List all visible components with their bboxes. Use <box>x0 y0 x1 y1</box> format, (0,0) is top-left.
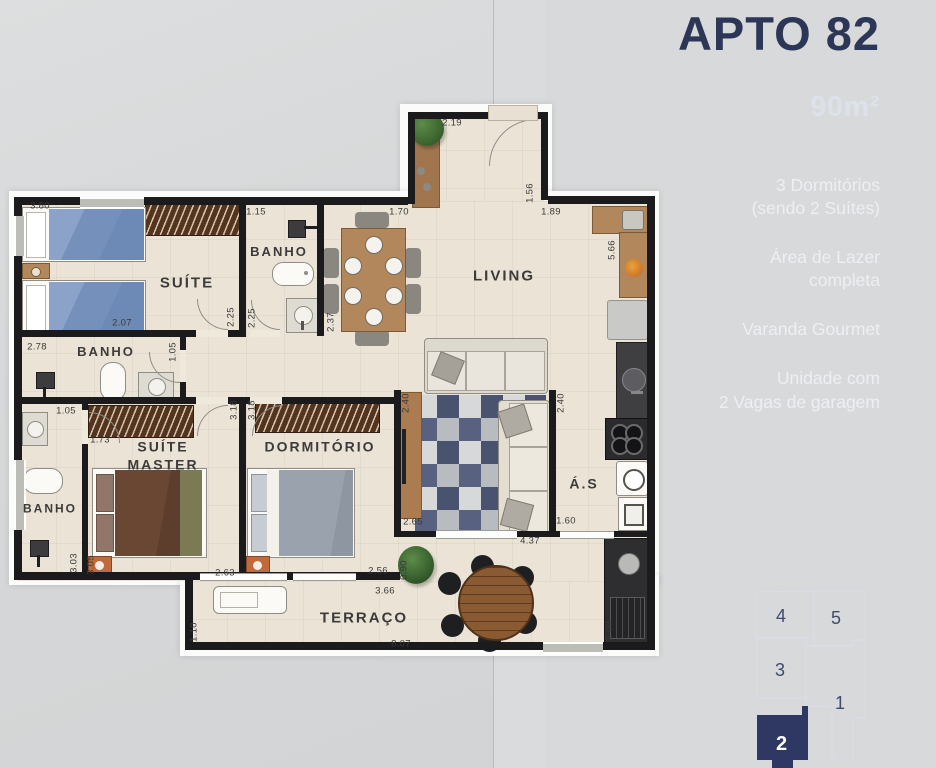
burner-icon <box>625 437 643 455</box>
lamp-icon <box>31 267 41 277</box>
dimension-label: 8.07 <box>391 639 411 650</box>
dimension-label: 1.15 <box>246 207 266 218</box>
pillow-icon <box>26 285 46 331</box>
dimension-label: 1.05 <box>56 406 76 417</box>
window-icon <box>80 197 144 209</box>
single-bed-icon <box>22 207 146 262</box>
laundry-tank-icon <box>618 497 648 531</box>
dining-table-icon <box>341 228 406 332</box>
feature-item: 3 Dormitórios (sendo 2 Suítes) <box>600 174 880 220</box>
faucet-icon <box>301 321 304 330</box>
shower-arm-icon <box>304 226 318 229</box>
keyplan-label-5: 5 <box>831 608 841 628</box>
dimension-label: 3.66 <box>375 586 395 597</box>
blanket-icon <box>115 470 180 556</box>
sliding-door-icon <box>293 573 356 581</box>
plate-icon <box>365 308 383 326</box>
window-icon <box>14 216 26 256</box>
sink-icon <box>618 553 640 575</box>
nightstand-icon <box>22 263 50 279</box>
room-label: BANHO <box>23 502 77 517</box>
feature-list: 3 Dormitórios (sendo 2 Suítes)Área de La… <box>600 174 880 414</box>
door-opening <box>196 330 228 337</box>
dimension-label: 3.03 <box>69 553 80 573</box>
dimension-label: 1.73 <box>90 435 110 446</box>
dimension-label: 3.18 <box>247 400 258 420</box>
pillow-icon <box>251 474 268 512</box>
apartment-area: 90m² <box>600 91 880 124</box>
sofa-cushion <box>509 447 548 491</box>
bench-seat <box>220 592 258 608</box>
room-label: DORMITÓRIO <box>265 438 376 456</box>
shower-stem-icon <box>37 555 40 567</box>
basin-icon <box>148 378 166 396</box>
dimension-label: 3.18 <box>229 400 240 420</box>
wardrobe-icon <box>145 202 240 236</box>
dimension-label: 2.19 <box>442 118 462 129</box>
marketing-floorplan-page: SUÍTEBANHOBANHOLIVINGSUÍTE MASTERDORMITÓ… <box>0 0 936 768</box>
feature-item: Varanda Gourmet <box>600 318 880 341</box>
toilet-icon <box>23 468 63 494</box>
dimension-label: 2.40 <box>401 393 412 413</box>
vanity-sink-icon <box>22 412 48 446</box>
bench-icon <box>213 586 287 614</box>
feature-item: Área de Lazer completa <box>600 246 880 292</box>
sofa-cushion <box>466 351 505 391</box>
dimension-label: 2.37 <box>326 312 337 332</box>
shower-head-icon <box>288 220 306 238</box>
plate-icon <box>344 257 362 275</box>
dimension-label: 4.37 <box>520 536 540 547</box>
sofa-icon <box>424 338 548 394</box>
room-label: SUÍTE MASTER <box>127 439 198 474</box>
keyplan-label-4: 4 <box>776 606 786 626</box>
window-icon <box>14 460 26 530</box>
keyplan-label-1: 1 <box>835 693 845 713</box>
pillow-icon <box>251 514 268 552</box>
keyplan-label-3: 3 <box>775 660 785 680</box>
dimension-label: 3.80 <box>30 201 50 212</box>
chair-icon <box>355 212 389 228</box>
grill-icon <box>610 597 645 639</box>
dimension-label: 1.60 <box>556 516 576 527</box>
dimension-label: 2.00 <box>604 621 615 641</box>
washer-icon <box>616 461 648 496</box>
sofa-icon <box>498 400 550 535</box>
entry-door-icon <box>488 105 538 121</box>
sheet-fold-icon <box>267 470 279 556</box>
tv-icon <box>402 429 406 484</box>
dimension-label: 2.40 <box>556 393 567 413</box>
keyplan-label-2: 2 <box>776 733 787 755</box>
dimension-label: 2.07 <box>112 318 132 329</box>
sliding-door-icon <box>560 531 614 539</box>
door-opening <box>180 350 186 382</box>
flush-icon <box>304 271 308 275</box>
tank-basin-icon <box>624 504 644 526</box>
door-opening <box>196 397 228 404</box>
room-label: TERRAÇO <box>320 610 408 629</box>
plate-icon <box>385 257 403 275</box>
room-label: BANHO <box>77 344 135 360</box>
pillow-icon <box>96 514 114 552</box>
knob-icon <box>423 183 431 191</box>
dimension-label: 2.78 <box>27 342 47 353</box>
knob-icon <box>417 167 425 175</box>
sofa-cushion <box>505 351 545 391</box>
info-panel: APTO 82 90m² 3 Dormitórios (sendo 2 Suít… <box>600 0 936 414</box>
feature-item: Unidade com 2 Vagas de garagem <box>600 367 880 413</box>
dimension-label: 0.90 <box>399 560 410 580</box>
toilet-icon <box>272 262 314 286</box>
door-opening <box>250 330 280 337</box>
dimension-label: 2.65 <box>403 517 423 528</box>
round-table-icon <box>458 565 534 641</box>
dimension-label: 2.56 <box>368 566 388 577</box>
chair-icon <box>405 248 421 278</box>
chair-icon <box>405 284 421 314</box>
room-label: BANHO <box>250 244 308 260</box>
room-label: SUÍTE <box>160 275 214 294</box>
blanket-icon <box>278 470 353 556</box>
bed-runner-icon <box>180 470 202 556</box>
washer-drum-icon <box>623 469 645 491</box>
dimension-label: 2.25 <box>226 307 237 327</box>
apartment-title: APTO 82 <box>600 6 880 61</box>
pillow-icon <box>96 474 114 512</box>
chair-icon <box>323 284 339 314</box>
room-label: LIVING <box>473 268 535 287</box>
sliding-door-icon <box>436 530 517 539</box>
chair-icon <box>323 248 339 278</box>
pillow-icon <box>26 212 46 258</box>
plate-icon <box>365 236 383 254</box>
basin-icon <box>27 421 44 438</box>
room-label: Á.S <box>569 475 598 493</box>
lamp-icon <box>253 561 262 570</box>
window-icon <box>543 642 603 654</box>
dimension-label: 1.56 <box>525 183 536 203</box>
plate-icon <box>385 287 403 305</box>
dimension-label: 1.70 <box>389 207 409 218</box>
dimension-label: 2.25 <box>247 308 258 328</box>
double-bed-icon <box>92 468 207 558</box>
blanket-icon <box>49 209 144 260</box>
toilet-icon <box>100 362 126 401</box>
vanity-sink-icon <box>286 298 320 333</box>
double-bed-icon <box>247 468 355 558</box>
door-opening <box>82 410 88 444</box>
building-keyplan: 4 5 3 1 2 <box>740 578 936 768</box>
dimension-label: 1.10 <box>189 622 200 642</box>
terrace-chair-icon <box>438 572 461 595</box>
dimension-label: 1.05 <box>168 342 179 362</box>
dimension-label: 2.63 <box>215 568 235 579</box>
sliding-door-icon <box>200 573 287 581</box>
chair-icon <box>355 330 389 346</box>
stove-icon <box>605 418 649 460</box>
plate-icon <box>344 287 362 305</box>
dimension-label: 1.89 <box>541 207 561 218</box>
dimension-label: 3.05 <box>86 555 97 575</box>
